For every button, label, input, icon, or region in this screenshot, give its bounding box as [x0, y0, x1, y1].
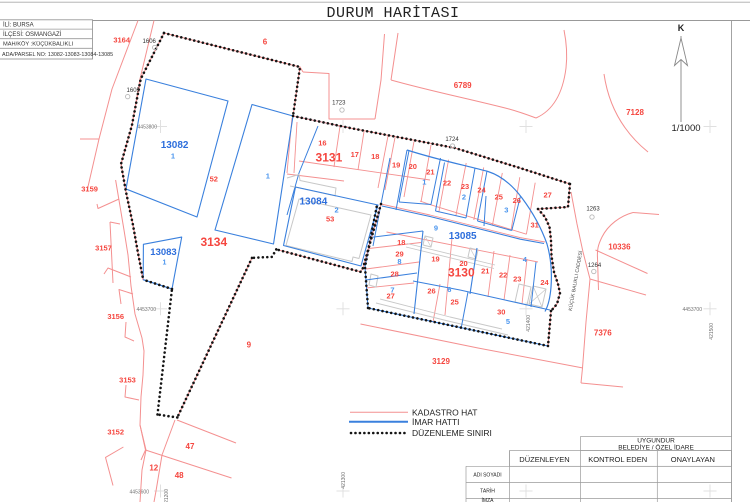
svg-text:1: 1 [422, 178, 426, 187]
svg-text:3153: 3153 [119, 376, 136, 385]
svg-text:ADA/PARSEL NO: 13082-13083-130: ADA/PARSEL NO: 13082-13083-13084-13085 [2, 52, 113, 58]
svg-text:2: 2 [335, 205, 339, 214]
svg-text:3: 3 [504, 206, 508, 215]
svg-text:13085: 13085 [449, 231, 477, 242]
svg-text:MAH/KÖY :KÜÇÜKBALIKLI: MAH/KÖY :KÜÇÜKBALIKLI [3, 41, 73, 48]
svg-text:22: 22 [499, 270, 507, 279]
svg-text:1: 1 [266, 171, 270, 180]
svg-text:3152: 3152 [107, 427, 124, 436]
svg-text:6: 6 [263, 37, 268, 46]
svg-text:7128: 7128 [626, 108, 644, 117]
svg-text:25: 25 [495, 192, 503, 201]
svg-text:30: 30 [497, 308, 505, 317]
svg-text:13084: 13084 [299, 196, 327, 207]
svg-text:31: 31 [531, 220, 539, 229]
svg-text:16: 16 [318, 139, 326, 148]
svg-text:3159: 3159 [81, 184, 98, 193]
svg-text:1724: 1724 [445, 137, 459, 143]
svg-text:1606: 1606 [143, 39, 157, 45]
svg-text:ADI SOYADI: ADI SOYADI [473, 472, 501, 478]
svg-text:KÜÇÜK BALIKLI CADDESİ: KÜÇÜK BALIKLI CADDESİ [567, 250, 584, 311]
svg-text:2: 2 [462, 192, 466, 201]
svg-text:İMAR HATTI: İMAR HATTI [412, 417, 460, 427]
svg-text:KONTROL EDEN: KONTROL EDEN [588, 455, 647, 464]
svg-text:53: 53 [326, 214, 334, 223]
svg-text:9: 9 [434, 224, 438, 233]
svg-text:İMZA: İMZA [482, 497, 495, 502]
svg-text:UYGUNDUR: UYGUNDUR [637, 437, 675, 444]
svg-text:1723: 1723 [332, 101, 346, 107]
svg-text:20: 20 [409, 162, 417, 171]
svg-text:3129: 3129 [432, 357, 450, 366]
svg-text:3134: 3134 [200, 235, 227, 249]
svg-text:TARİH: TARİH [480, 487, 495, 494]
svg-text:421200: 421200 [164, 489, 170, 502]
svg-text:İLÇESİ: OSMANGAZİ: İLÇESİ: OSMANGAZİ [3, 31, 62, 38]
svg-text:26: 26 [513, 196, 521, 205]
svg-text:421400: 421400 [526, 315, 532, 332]
svg-text:3157: 3157 [95, 244, 112, 253]
svg-text:4453700: 4453700 [683, 307, 703, 313]
svg-text:12: 12 [149, 463, 158, 472]
svg-text:9: 9 [247, 341, 252, 350]
svg-text:1/1000: 1/1000 [671, 123, 700, 134]
svg-text:24: 24 [540, 278, 549, 287]
svg-text:1264: 1264 [588, 263, 602, 269]
svg-text:BELEDİYE / ÖZEL İDARE: BELEDİYE / ÖZEL İDARE [618, 442, 694, 451]
svg-text:10336: 10336 [608, 242, 631, 251]
svg-text:7: 7 [390, 286, 394, 295]
svg-text:7376: 7376 [594, 328, 612, 337]
svg-text:19: 19 [392, 160, 400, 169]
svg-text:1605: 1605 [127, 88, 141, 94]
svg-text:DURUM HARİTASI: DURUM HARİTASI [326, 4, 459, 22]
svg-text:3131: 3131 [316, 151, 343, 165]
svg-text:20: 20 [459, 259, 467, 268]
svg-text:K: K [678, 23, 685, 33]
svg-text:6: 6 [447, 285, 451, 294]
svg-text:23: 23 [461, 182, 469, 191]
svg-text:52: 52 [210, 174, 218, 183]
svg-text:13082: 13082 [161, 140, 189, 151]
svg-text:5: 5 [506, 317, 510, 326]
svg-text:18: 18 [371, 152, 379, 161]
svg-text:13083: 13083 [150, 247, 176, 258]
svg-text:18: 18 [397, 238, 405, 247]
svg-text:1263: 1263 [586, 207, 600, 213]
svg-text:421300: 421300 [341, 472, 347, 489]
svg-text:1: 1 [163, 259, 167, 266]
svg-text:6789: 6789 [454, 81, 472, 90]
svg-text:3164: 3164 [113, 36, 131, 45]
svg-text:27: 27 [544, 191, 552, 200]
svg-text:4453700: 4453700 [137, 307, 157, 313]
svg-text:1: 1 [171, 151, 175, 160]
svg-text:28: 28 [391, 270, 399, 279]
svg-text:23: 23 [513, 274, 521, 283]
svg-text:26: 26 [427, 286, 435, 295]
svg-text:19: 19 [431, 254, 439, 263]
svg-text:DÜZENLEME SINIRI: DÜZENLEME SINIRI [412, 428, 492, 438]
svg-text:3156: 3156 [107, 312, 124, 321]
svg-text:17: 17 [351, 150, 359, 159]
svg-text:KADASTRO HAT: KADASTRO HAT [412, 407, 478, 417]
svg-text:21: 21 [481, 266, 489, 275]
svg-text:4453600: 4453600 [130, 489, 150, 495]
svg-text:DÜZENLEYEN: DÜZENLEYEN [519, 455, 569, 464]
svg-text:4453800: 4453800 [138, 124, 158, 130]
svg-text:421500: 421500 [709, 323, 715, 340]
svg-text:22: 22 [443, 178, 451, 187]
svg-text:47: 47 [186, 442, 195, 451]
svg-text:ONAYLAYAN: ONAYLAYAN [671, 455, 715, 464]
svg-text:24: 24 [477, 186, 486, 195]
svg-text:21: 21 [426, 168, 434, 177]
svg-text:8: 8 [397, 257, 401, 266]
svg-text:İLİ: BURSA: İLİ: BURSA [3, 22, 34, 29]
svg-text:25: 25 [451, 298, 459, 307]
svg-text:48: 48 [175, 471, 184, 480]
